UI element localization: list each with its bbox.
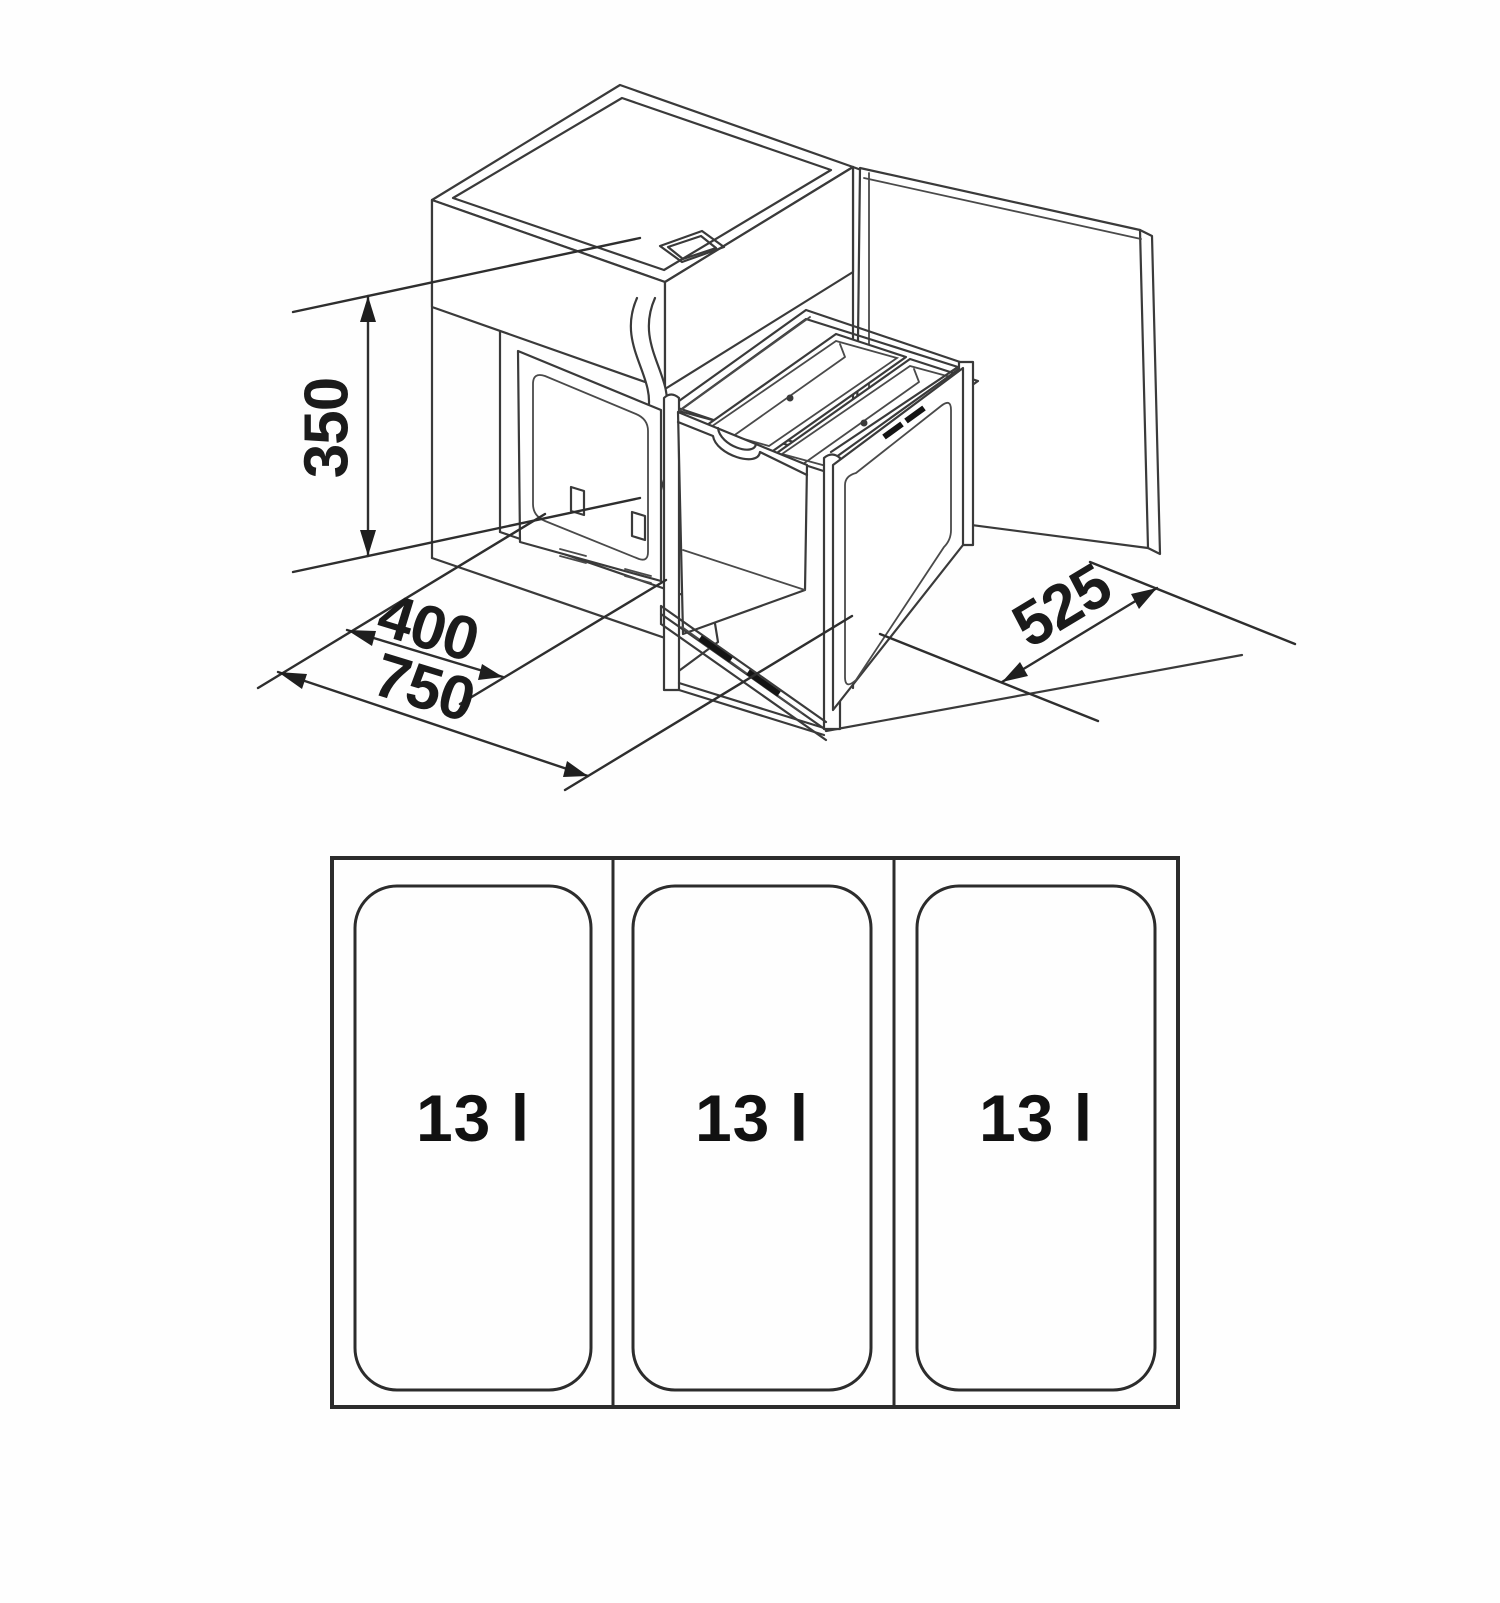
- dim750-arrow-left: [278, 672, 307, 689]
- dim400-ext-right: [460, 580, 666, 704]
- isometric-view: 350 400 750 525: [258, 85, 1295, 790]
- plan-bin-2: 13 l: [633, 886, 871, 1390]
- pullout-front-panel: [518, 351, 661, 583]
- dim350-label: 350: [293, 378, 362, 478]
- bin2-hole: [787, 395, 794, 402]
- dimension-depth: 525: [880, 551, 1295, 721]
- dim750-arrow-right: [563, 761, 588, 777]
- cabinet-right-floor-line: [826, 655, 1242, 731]
- dim400-arrow-right: [478, 664, 503, 680]
- plan-view: 13 l 13 l 13 l: [332, 858, 1178, 1407]
- bin3-hole: [861, 420, 868, 427]
- diagram-canvas: 350 400 750 525: [0, 0, 1500, 1603]
- plan-bin-2-label: 13 l: [695, 1081, 809, 1155]
- dim525-ext-left: [880, 634, 1098, 721]
- dim350-arrow-top: [360, 296, 376, 322]
- dim525-ext-right: [1090, 562, 1295, 644]
- plan-bin-1-label: 13 l: [416, 1081, 530, 1155]
- plan-bin-1: 13 l: [355, 886, 591, 1390]
- dim525-arrow-bottom: [1002, 662, 1028, 682]
- front-panel-face: [518, 351, 661, 581]
- frame-post-front-left: [664, 395, 679, 691]
- technical-diagram-page: 350 400 750 525: [0, 0, 1500, 1603]
- plan-bin-3-label: 13 l: [979, 1081, 1093, 1155]
- plan-bin-3: 13 l: [917, 886, 1155, 1390]
- dim525-arrow-top: [1131, 588, 1157, 609]
- dim350-arrow-bottom: [360, 530, 376, 556]
- front-panel-clip-2: [632, 512, 645, 540]
